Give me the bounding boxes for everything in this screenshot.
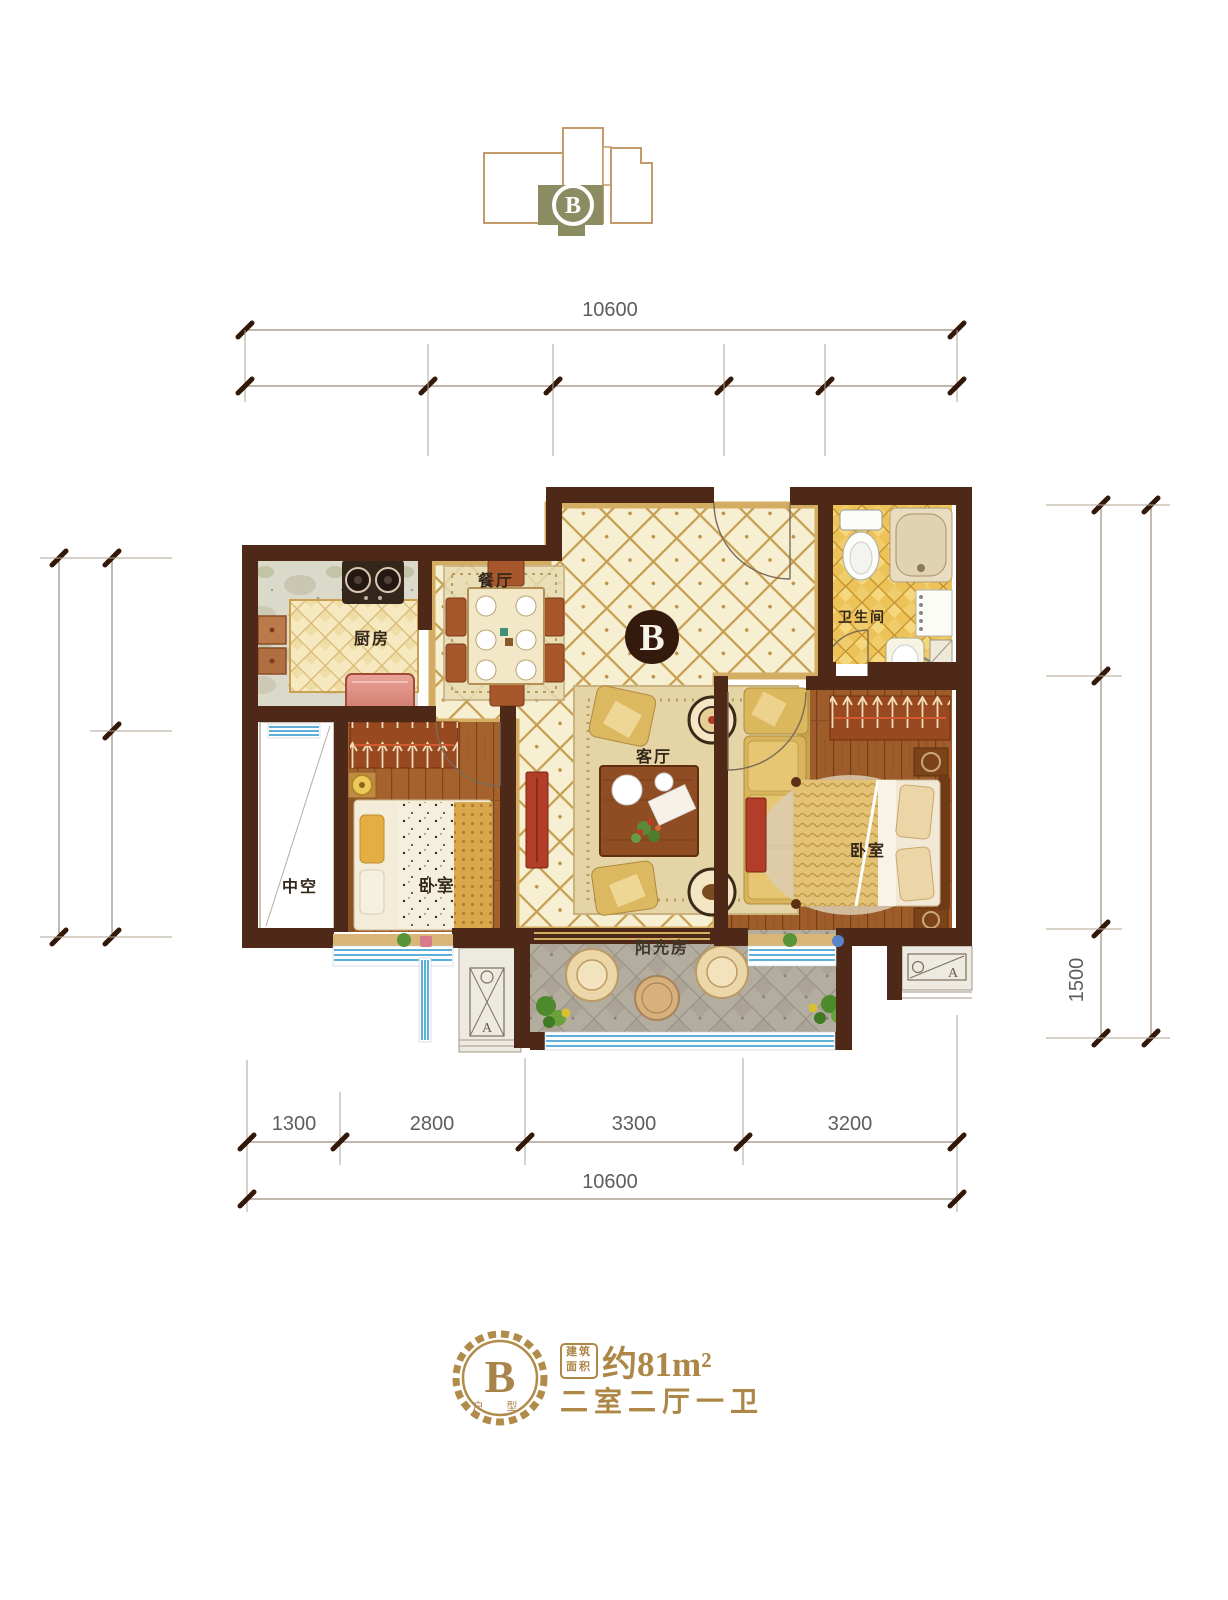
dim-seg-1300: 1300 — [272, 1113, 317, 1135]
dim-right-segment: 1500 — [1066, 958, 1088, 1003]
dim-left — [40, 551, 172, 944]
tv-bench — [746, 798, 766, 872]
dining-chair — [446, 644, 466, 682]
unit-mark: B — [625, 610, 679, 664]
dim-right: 1500 — [1046, 498, 1170, 1045]
ac-mark-left: A — [482, 1021, 493, 1036]
key-building-step — [603, 147, 611, 185]
sill-deco — [420, 936, 432, 947]
key-building-right — [611, 148, 652, 223]
label-bathroom: 卫生间 — [838, 609, 886, 626]
unit-mark-letter: B — [639, 617, 664, 659]
dining-chair — [544, 644, 564, 682]
area-stamp: 建筑 面积 — [560, 1343, 598, 1379]
rooms-text: 二室二厅一卫 — [560, 1380, 820, 1420]
label-sunroom: 阳光房 — [635, 938, 689, 957]
unit-badge: B 户 型 — [450, 1328, 550, 1428]
building-key-plan: B — [484, 128, 652, 236]
sill-plant-icon — [783, 933, 797, 947]
pillow — [895, 846, 934, 901]
dim-top-total: 10600 — [582, 299, 638, 321]
sill-plant-icon — [397, 933, 411, 947]
ac-platform-right: A — [902, 946, 972, 998]
dim-seg-3200: 3200 — [828, 1113, 873, 1135]
ac-platform-left: A — [459, 948, 521, 1052]
label-void: 中空 — [282, 877, 318, 896]
dim-seg-3300: 3300 — [612, 1113, 657, 1135]
key-unit-letter: B — [565, 193, 581, 219]
floorplan-page: B 10600 — [0, 0, 1228, 1600]
key-unit-tab — [558, 225, 585, 236]
label-living: 客厅 — [636, 747, 672, 766]
badge-caption: 户 型 — [473, 1399, 528, 1413]
dining-chair — [446, 598, 466, 636]
sill-deco — [832, 935, 844, 947]
badge-letter: B — [485, 1351, 516, 1402]
dim-top: 10600 — [238, 299, 964, 456]
void-area — [260, 722, 334, 930]
dining-chair — [544, 598, 564, 636]
dim-seg-2800: 2800 — [410, 1113, 455, 1135]
dining-chair — [490, 682, 524, 706]
pillow — [895, 784, 934, 839]
ac-mark-right: A — [948, 966, 959, 981]
toilet-tank — [840, 510, 882, 530]
area-stamp-line1: 建筑 — [562, 1345, 596, 1360]
area-stamp-line2: 面积 — [562, 1360, 596, 1375]
dim-bottom-total: 10600 — [582, 1171, 638, 1193]
label-bedroom-right: 卧室 — [850, 841, 886, 860]
label-dining: 餐厅 — [477, 571, 514, 590]
label-kitchen: 厨房 — [354, 629, 390, 648]
pillow — [360, 815, 384, 863]
label-bedroom-left: 卧室 — [419, 876, 455, 895]
pillow — [360, 870, 384, 914]
armchair — [591, 860, 659, 916]
